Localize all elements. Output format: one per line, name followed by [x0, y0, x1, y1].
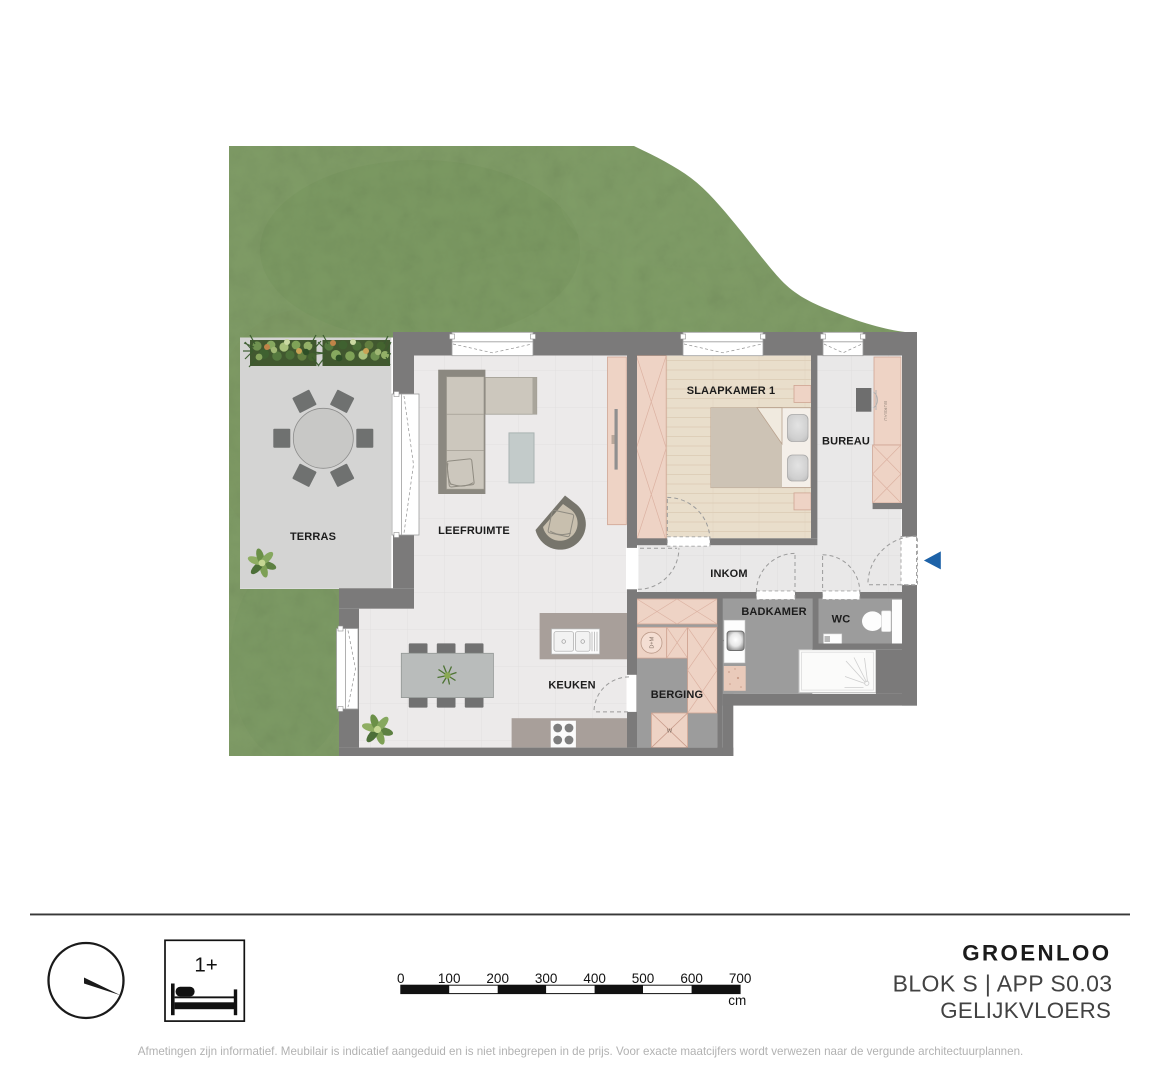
- svg-text:1+: 1+: [194, 954, 217, 977]
- svg-text:W: W: [667, 729, 673, 735]
- svg-text:cm: cm: [728, 993, 746, 1008]
- svg-text:200: 200: [486, 971, 509, 986]
- svg-text:400: 400: [583, 971, 606, 986]
- svg-text:100: 100: [438, 971, 461, 986]
- svg-text:INKOM: INKOM: [710, 568, 747, 580]
- svg-text:300: 300: [535, 971, 558, 986]
- svg-text:600: 600: [680, 971, 703, 986]
- svg-text:SLAAPKAMER 1: SLAAPKAMER 1: [687, 385, 776, 397]
- svg-text:700: 700: [729, 971, 752, 986]
- svg-text:BERGING: BERGING: [651, 689, 703, 701]
- svg-text:Afmetingen zijn informatief. M: Afmetingen zijn informatief. Meubilair i…: [138, 1045, 1024, 1058]
- svg-text:GELIJKVLOERS: GELIJKVLOERS: [940, 998, 1111, 1023]
- svg-text:500: 500: [632, 971, 655, 986]
- svg-text:TERRAS: TERRAS: [290, 531, 336, 543]
- svg-text:BUREAU: BUREAU: [822, 436, 870, 448]
- svg-text:BLOK S | APP S0.03: BLOK S | APP S0.03: [893, 971, 1113, 997]
- svg-text:KEUKEN: KEUKEN: [548, 680, 595, 692]
- svg-text:WC: WC: [832, 614, 851, 626]
- svg-text:GROENLOO: GROENLOO: [962, 941, 1111, 966]
- svg-text:0: 0: [397, 971, 405, 986]
- svg-text:D+M: D+M: [650, 636, 656, 648]
- svg-text:BADKAMER: BADKAMER: [741, 606, 806, 618]
- svg-text:BUREAU: BUREAU: [883, 401, 888, 421]
- svg-text:LEEFRUIMTE: LEEFRUIMTE: [438, 525, 510, 537]
